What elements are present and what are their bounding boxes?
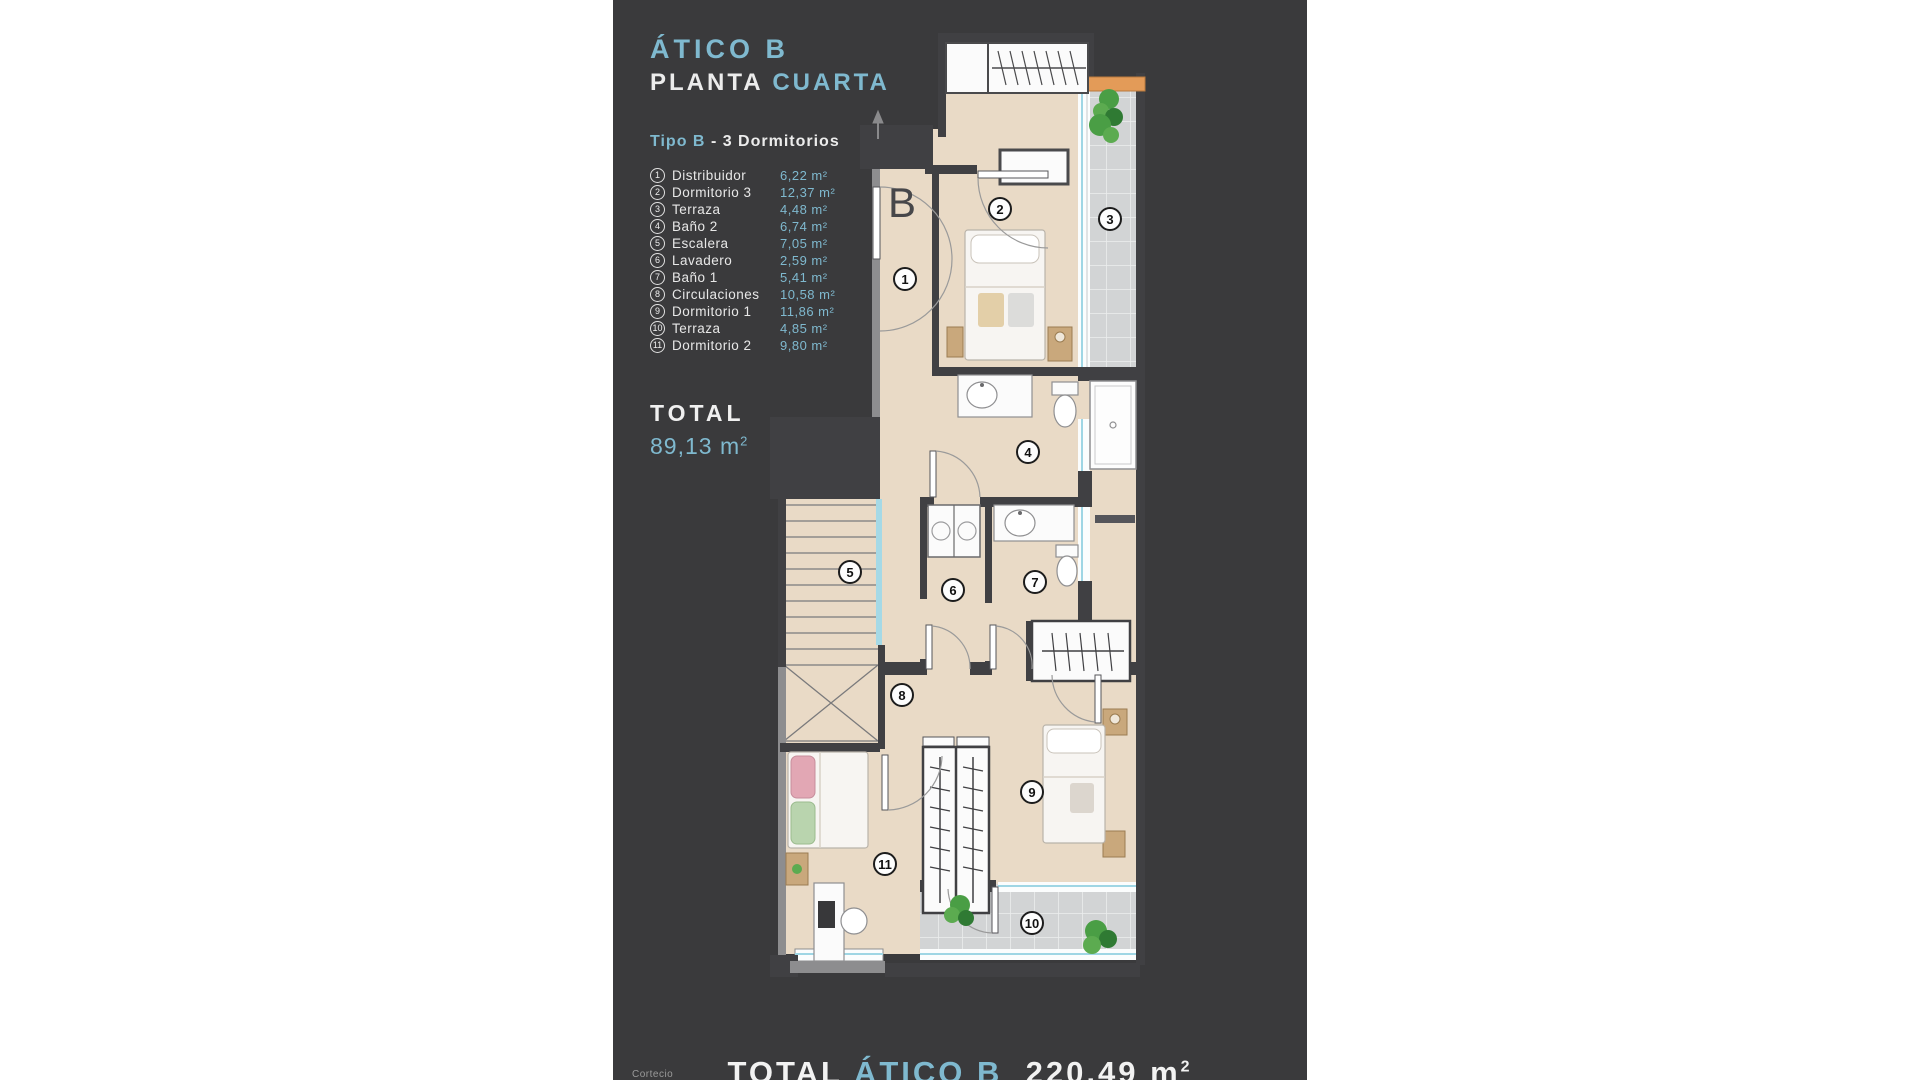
room-badge: 11	[874, 853, 896, 875]
dresser	[1000, 150, 1068, 184]
wardrobe-bedroom-1	[1026, 621, 1130, 681]
svg-text:2: 2	[996, 202, 1003, 217]
legend-label: Circulaciones	[672, 287, 780, 302]
room-badge: 2	[989, 198, 1011, 220]
legend-number: 4	[650, 219, 665, 234]
svg-text:11: 11	[878, 857, 892, 872]
svg-text:10: 10	[1025, 916, 1039, 931]
legend-number: 2	[650, 185, 665, 200]
legend-number: 3	[650, 202, 665, 217]
svg-text:1: 1	[901, 272, 908, 287]
legend-label: Distribuidor	[672, 168, 780, 183]
legend-label: Baño 1	[672, 270, 780, 285]
room-badge: 3	[1099, 208, 1121, 230]
total-value-sup: 2	[740, 433, 748, 448]
svg-text:6: 6	[949, 583, 956, 598]
svg-text:4: 4	[1024, 445, 1032, 460]
floorplan-panel: ÁTICO B PLANTA CUARTA Tipo B - 3 Dormito…	[613, 0, 1307, 1080]
terrace-lintel	[1088, 77, 1145, 91]
room-badge: 5	[839, 561, 861, 583]
legend-label: Dormitorio 1	[672, 304, 780, 319]
legend-label: Dormitorio 3	[672, 185, 780, 200]
legend-number: 10	[650, 321, 665, 336]
svg-text:5: 5	[846, 565, 853, 580]
legend-number: 6	[650, 253, 665, 268]
legend-label: Baño 2	[672, 219, 780, 234]
room-badge: 10	[1021, 912, 1043, 934]
svg-text:7: 7	[1031, 575, 1038, 590]
legend-number: 11	[650, 338, 665, 353]
room-badge: 8	[891, 684, 913, 706]
footer-total-label: TOTAL	[727, 1055, 842, 1080]
wardrobe-top	[946, 43, 1088, 93]
unit-type: Tipo B	[650, 133, 705, 150]
legend-label: Terraza	[672, 202, 780, 217]
svg-text:3: 3	[1106, 212, 1113, 227]
footer-unit-name: ÁTICO B	[854, 1055, 1002, 1080]
footer-total: TOTAL ÁTICO B 220,49 m2	[613, 1055, 1307, 1080]
legend-number: 9	[650, 304, 665, 319]
entrance-label: B	[888, 179, 916, 226]
stair-glass-rail	[876, 499, 882, 645]
legend-label: Dormitorio 2	[672, 338, 780, 353]
footer-total-sup: 2	[1181, 1059, 1193, 1076]
legend-number: 5	[650, 236, 665, 251]
room-badge: 6	[942, 579, 964, 601]
footer-total-value: 220,49 m	[1026, 1055, 1181, 1080]
room-badge: 1	[894, 268, 916, 290]
total-value-number: 89,13 m	[650, 433, 740, 459]
room-badge: 7	[1024, 571, 1046, 593]
legend-number: 8	[650, 287, 665, 302]
room-badge: 4	[1017, 441, 1039, 463]
floor-word: PLANTA	[650, 69, 763, 96]
legend-label: Lavadero	[672, 253, 780, 268]
legend-label: Escalera	[672, 236, 780, 251]
floor-plan: B 1 2 3 4 5 6 7 8 9 10 11	[770, 25, 1150, 1020]
svg-text:8: 8	[898, 688, 905, 703]
legend-label: Terraza	[672, 321, 780, 336]
svg-text:9: 9	[1028, 785, 1035, 800]
legend-number: 7	[650, 270, 665, 285]
legend-number: 1	[650, 168, 665, 183]
wardrobe-center	[923, 737, 989, 913]
laundry-fixtures	[928, 505, 980, 557]
room-badge: 9	[1021, 781, 1043, 803]
